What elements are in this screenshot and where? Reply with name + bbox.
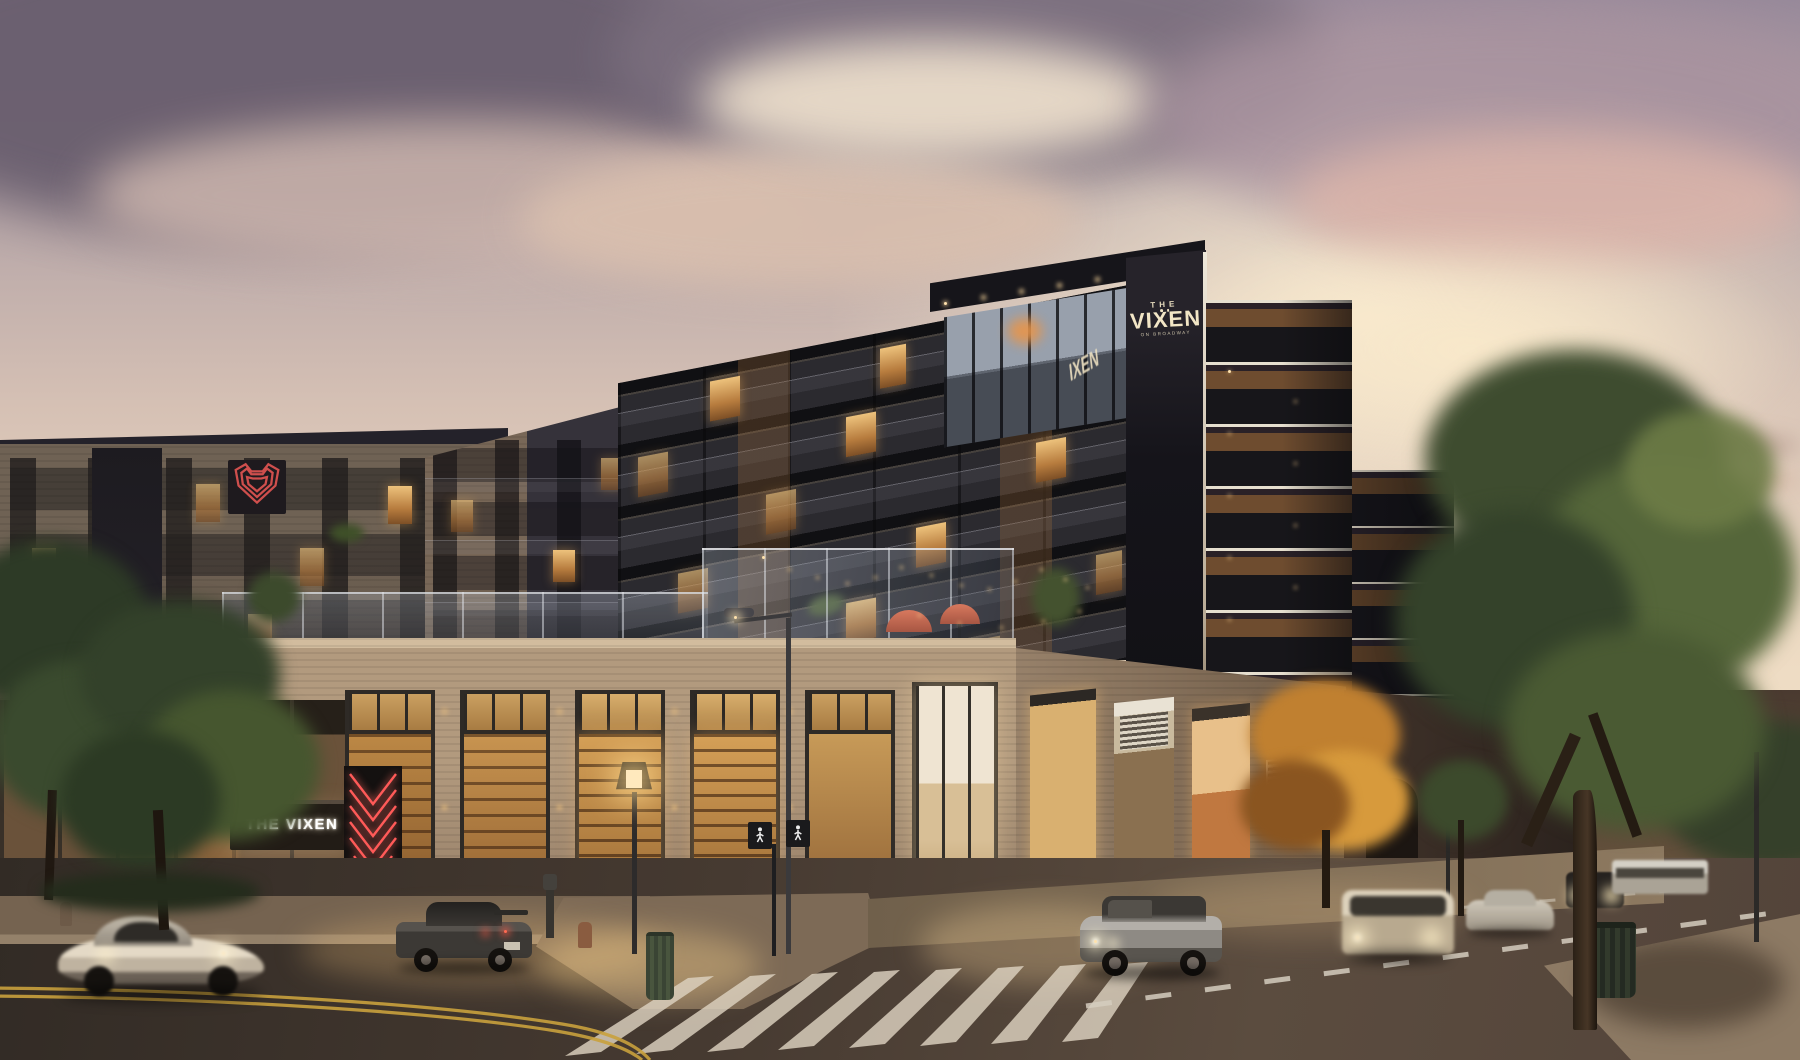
signal-box: [748, 822, 772, 849]
scene-canvas: THE VIXEN ON BROADWAY IXEN: [0, 0, 1800, 1060]
suv-shadow: [1082, 966, 1220, 980]
cobra-head: [724, 608, 754, 617]
tree-trunk: [1458, 820, 1464, 916]
van-headlights: [1356, 936, 1359, 939]
fire-hydrant: [578, 922, 592, 948]
walk-figure-icon: [792, 825, 804, 841]
vehicle-suv: [1080, 892, 1222, 984]
parking-meter: [546, 888, 554, 938]
shrub-row-left: [40, 872, 260, 912]
tree-trunk: [1573, 790, 1597, 1030]
pedestrian-signals: [744, 816, 816, 956]
trash-can-green: [646, 932, 674, 1000]
sedan-spoiler: [494, 910, 528, 915]
meter-head: [543, 874, 557, 890]
sedan-plate: [504, 942, 520, 950]
lamp-pole: [632, 792, 637, 954]
tree-trunk: [1322, 830, 1330, 908]
sedan2-shadow: [1468, 928, 1552, 938]
sedan-cabin: [426, 902, 502, 926]
van-shadow: [1346, 950, 1450, 964]
walk-figure-icon: [754, 827, 766, 843]
porsche-headlights: [222, 952, 225, 955]
cobra-light: [734, 616, 737, 619]
sedan-taillights: [504, 930, 507, 933]
street-lamp: [614, 758, 654, 954]
suv-headlights: [1094, 940, 1097, 943]
porsche-shadow: [62, 986, 262, 1002]
street-tree-right: [1408, 760, 1518, 920]
signal-pole: [772, 844, 776, 956]
signal-box: [786, 820, 810, 847]
sedan-shadow: [398, 962, 530, 974]
lamp-glow: [626, 770, 642, 788]
tree-autumn: [1240, 680, 1420, 910]
suv-windshield: [1108, 900, 1152, 918]
vehicle-sedan-parked: [396, 896, 532, 978]
